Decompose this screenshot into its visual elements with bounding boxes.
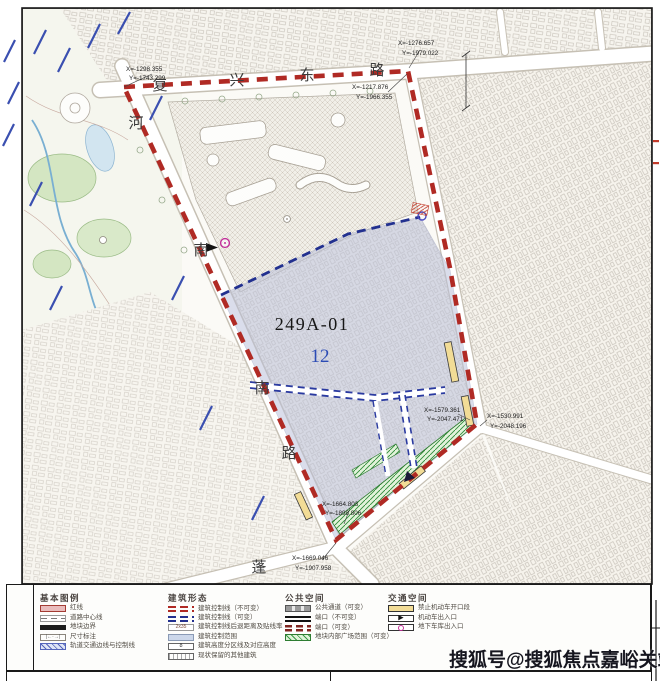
svg-text:南: 南 [254, 380, 269, 397]
svg-text:复: 复 [152, 76, 167, 94]
svg-text:X=-1217.876: X=-1217.876 [352, 84, 389, 91]
legend-item: 建筑控制线（不可变） [168, 605, 263, 613]
legend-item: 地块内部广场范围（可变） [285, 634, 393, 641]
legend-item-label: 建筑控制线后退距离及贴线率 [198, 624, 283, 631]
legend-item-label: 建筑控制线（不可变） [198, 606, 263, 613]
svg-text:南: 南 [193, 242, 208, 259]
red-line-swatch [40, 605, 66, 612]
svg-text:Y=-1979.022: Y=-1979.022 [402, 50, 439, 57]
svg-text:X=-1276.657: X=-1276.657 [398, 40, 435, 47]
control-line-variable-swatch [168, 615, 194, 623]
title-block-left-border [6, 671, 7, 681]
legend-item-label: 红线 [70, 605, 83, 612]
legend-item-label: 建筑控制线（可变） [198, 615, 257, 622]
svg-text:X=-1579.361: X=-1579.361 [424, 407, 461, 414]
vehicle-arrow-icon: ▶ [398, 614, 403, 621]
legend-divider [33, 585, 34, 670]
height-zone-swatch: 8 [168, 643, 194, 650]
legend-item-label: 地块边界 [70, 624, 96, 631]
legend-item: 公共通道（可变） [285, 605, 367, 612]
portal-variable-swatch [285, 624, 311, 632]
legend-item: 建筑控制范围 [168, 634, 237, 641]
legend-item-label: 现状保留的其他建筑 [198, 653, 257, 660]
right-edge-ticks [652, 140, 660, 681]
plaza-range-swatch [285, 634, 311, 641]
rail-transit-margin-marks [3, 40, 19, 146]
public-passage-swatch [285, 605, 311, 612]
svg-text:Y=-1898.806: Y=-1898.806 [325, 510, 362, 517]
planning-map-sheet: X=-1298.355 Y=-1743.299 X=-1276.657 Y=-1… [0, 0, 660, 681]
legend-item-label: 机动车出入口 [418, 615, 457, 622]
legend-item: 建筑控制线（可变） [168, 615, 257, 623]
legend-item: 轨道交通边线与控制线 [40, 643, 135, 650]
legend-item: 8 建筑高度分区线及对应高度 [168, 643, 276, 650]
parcel-number-label: 12 [311, 346, 330, 367]
portal-fixed-swatch [285, 615, 311, 623]
legend-item: 禁止机动车开口段 [388, 605, 470, 612]
vehicle-entrance-swatch: ▶ [388, 615, 414, 622]
legend-item-label: 公共通道（可变） [315, 605, 367, 612]
legend-item: 端口（可变） [285, 624, 354, 632]
svg-text:Y=-2047.471: Y=-2047.471 [427, 416, 464, 423]
legend-item-label: 端口（不可变） [315, 615, 361, 622]
svg-text:X=-1669.046: X=-1669.046 [292, 555, 329, 562]
legend-section-title: 建筑形态 [168, 592, 208, 604]
legend-item: 红线 [40, 605, 83, 612]
map-canvas: X=-1298.355 Y=-1743.299 X=-1276.657 Y=-1… [0, 0, 660, 681]
legend-section-title: 公共空间 [285, 592, 325, 604]
control-line-fixed-swatch [168, 605, 194, 613]
legend-item-label: 轨道交通边线与控制线 [70, 643, 135, 650]
legend-item: |←·→| 尺寸标注 [40, 634, 96, 641]
legend-item-label: 地块内部广场范围（可变） [315, 634, 393, 641]
rail-transit-swatch [40, 643, 66, 650]
legend-item: 地块边界 [40, 624, 96, 631]
svg-text:X=-1664.803: X=-1664.803 [322, 501, 359, 508]
svg-text:Y=-1907.958: Y=-1907.958 [295, 565, 332, 572]
legend-item: 2x35 建筑控制线后退距离及贴线率 [168, 624, 283, 631]
svg-text:Y=-2048.196: Y=-2048.196 [490, 423, 527, 430]
svg-text:X=-1530.991: X=-1530.991 [487, 413, 524, 420]
svg-text:东: 东 [299, 67, 314, 84]
svg-text:Y=-1966.355: Y=-1966.355 [356, 94, 393, 101]
legend-item-label: 建筑控制范围 [198, 634, 237, 641]
legend-item-label: 端口（可变） [315, 625, 354, 632]
legend-section-title: 基本图例 [40, 592, 80, 604]
legend-item: 地下车库出入口 [388, 624, 464, 631]
legend-item-label: 地下车库出入口 [418, 624, 464, 631]
map-content: X=-1298.355 Y=-1743.299 X=-1276.657 Y=-1… [22, 8, 660, 592]
buildable-range-swatch [168, 634, 194, 641]
title-block-divider [330, 671, 331, 681]
svg-text:路: 路 [369, 62, 384, 79]
parcel-code-label: 249A-01 [275, 314, 350, 334]
legend-item: 端口（不可变） [285, 615, 361, 623]
svg-text:河: 河 [128, 115, 143, 132]
setback-ratio-swatch: 2x35 [168, 624, 194, 631]
svg-text:X=-1298.355: X=-1298.355 [126, 66, 163, 73]
no-opening-swatch [388, 605, 414, 612]
legend-item-label: 建筑高度分区线及对应高度 [198, 643, 276, 650]
legend-item-label: 尺寸标注 [70, 634, 96, 641]
legend-section-title: 交通空间 [388, 592, 428, 604]
legend-item: ▶ 机动车出入口 [388, 615, 457, 622]
svg-text:路: 路 [281, 445, 296, 462]
legend-item: 现状保留的其他建筑 [168, 653, 257, 660]
garage-circle-icon [398, 625, 404, 631]
retained-buildings-swatch [168, 653, 194, 660]
dimension-swatch: |←·→| [40, 634, 66, 641]
watermark: 搜狐号@搜狐焦点嘉峪关站 [449, 645, 660, 672]
parcel-boundary-swatch [40, 625, 66, 630]
legend-item: 道路中心线 [40, 615, 103, 622]
legend-item-label: 禁止机动车开口段 [418, 605, 470, 612]
legend-item-label: 道路中心线 [70, 615, 103, 622]
road-centerline-swatch [40, 615, 66, 622]
svg-text:兴: 兴 [229, 72, 244, 89]
garage-entrance-swatch [388, 624, 414, 631]
svg-text:蓬: 蓬 [251, 559, 266, 576]
